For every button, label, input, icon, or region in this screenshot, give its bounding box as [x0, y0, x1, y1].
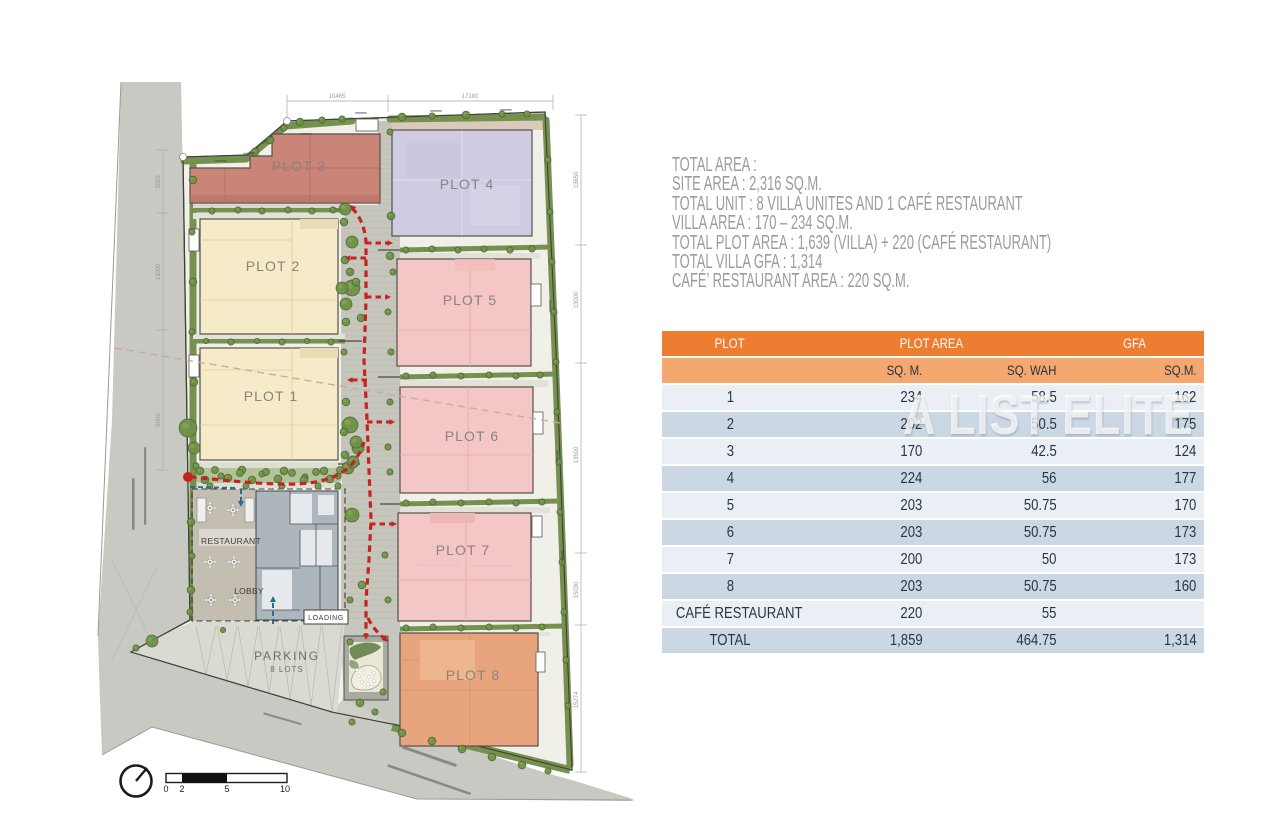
svg-text:PLOT 2: PLOT 2: [246, 258, 301, 274]
svg-text:13000: 13000: [156, 263, 162, 280]
svg-text:5: 5: [224, 784, 229, 794]
svg-text:PLOT 5: PLOT 5: [443, 292, 498, 308]
svg-text:PLOT 8: PLOT 8: [446, 667, 501, 683]
svg-text:PLOT 7: PLOT 7: [436, 542, 491, 558]
svg-text:0: 0: [163, 784, 168, 794]
svg-text:13000: 13000: [574, 291, 580, 308]
svg-text:PLOT 1: PLOT 1: [244, 388, 299, 404]
svg-text:13650: 13650: [574, 171, 580, 188]
svg-text:8 LOTS: 8 LOTS: [270, 665, 304, 674]
svg-text:13500: 13500: [574, 446, 580, 463]
svg-text:17180: 17180: [462, 94, 479, 100]
svg-text:10: 10: [280, 784, 290, 794]
svg-text:LOADING: LOADING: [308, 615, 344, 622]
svg-text:PARKING: PARKING: [254, 649, 320, 663]
svg-text:3095: 3095: [156, 175, 162, 189]
svg-text:PLOT 3: PLOT 3: [272, 158, 327, 174]
svg-text:PLOT 4: PLOT 4: [440, 176, 495, 192]
svg-text:PLOT 6: PLOT 6: [445, 428, 500, 444]
svg-text:5000: 5000: [156, 413, 162, 427]
svg-text:LOBBY: LOBBY: [234, 586, 264, 596]
svg-text:10465: 10465: [329, 94, 346, 100]
svg-text:2: 2: [179, 784, 184, 794]
svg-text:15030: 15030: [574, 581, 580, 598]
svg-text:15274: 15274: [574, 691, 580, 708]
svg-text:RESTAURANT: RESTAURANT: [201, 536, 261, 546]
